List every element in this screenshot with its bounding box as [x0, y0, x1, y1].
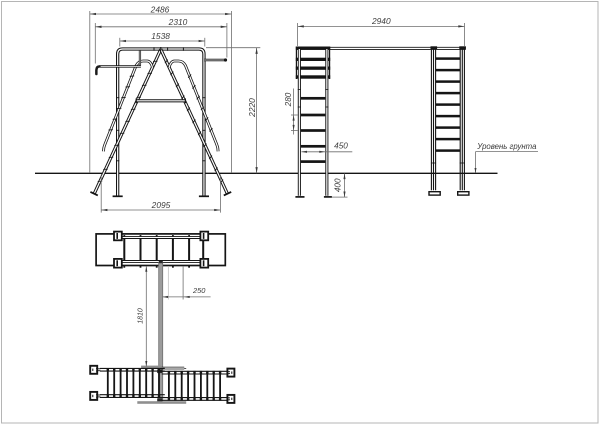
svg-text:2940: 2940 [371, 16, 391, 26]
svg-text:400: 400 [333, 178, 342, 192]
svg-text:2220: 2220 [247, 98, 257, 118]
svg-text:2095: 2095 [151, 200, 171, 210]
svg-text:2486: 2486 [150, 4, 170, 14]
svg-text:280: 280 [284, 92, 293, 107]
svg-text:Уровень грунта: Уровень грунта [476, 142, 537, 151]
svg-text:1538: 1538 [151, 31, 170, 41]
svg-text:450: 450 [334, 142, 348, 151]
svg-text:2310: 2310 [168, 17, 188, 27]
svg-text:1810: 1810 [137, 308, 144, 324]
svg-text:250: 250 [192, 286, 206, 295]
